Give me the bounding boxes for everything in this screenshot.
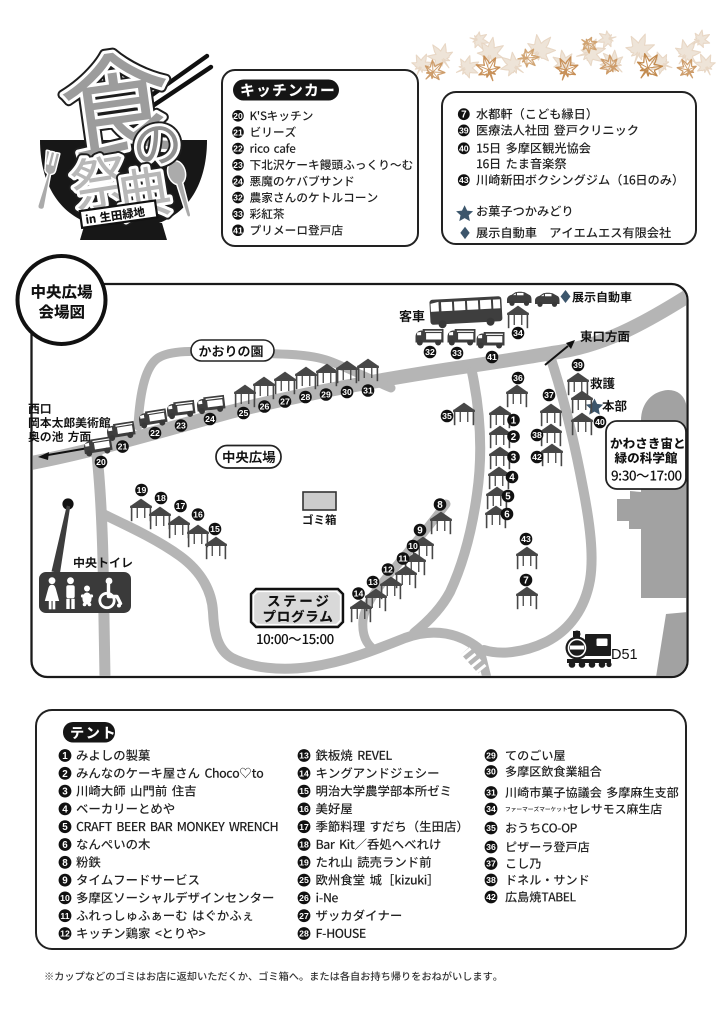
svg-text:32: 32	[425, 347, 435, 357]
svg-text:14: 14	[299, 768, 309, 778]
svg-text:43: 43	[521, 534, 531, 544]
svg-text:7: 7	[461, 110, 467, 121]
svg-text:40: 40	[459, 143, 469, 153]
svg-text:2: 2	[62, 769, 68, 780]
svg-text:18: 18	[299, 840, 309, 850]
svg-text:7: 7	[523, 576, 529, 587]
svg-text:34: 34	[513, 328, 523, 338]
svg-text:18: 18	[156, 493, 166, 503]
svg-text:35: 35	[442, 411, 452, 421]
svg-text:10: 10	[408, 541, 418, 551]
svg-text:13: 13	[299, 751, 309, 761]
svg-text:8: 8	[437, 500, 443, 511]
svg-text:33: 33	[233, 209, 243, 219]
svg-text:11: 11	[60, 911, 69, 921]
svg-text:22: 22	[233, 144, 243, 154]
svg-text:13: 13	[368, 577, 378, 587]
svg-text:21: 21	[233, 127, 243, 137]
svg-text:15: 15	[299, 786, 309, 796]
svg-text:21: 21	[118, 442, 128, 452]
svg-text:9: 9	[62, 876, 68, 887]
svg-text:25: 25	[239, 408, 249, 418]
svg-text:2: 2	[511, 432, 517, 443]
svg-text:31: 31	[486, 788, 496, 798]
svg-text:28: 28	[299, 929, 309, 939]
svg-text:17: 17	[299, 822, 309, 832]
svg-text:42: 42	[486, 892, 496, 902]
svg-text:26: 26	[299, 893, 309, 903]
svg-text:15: 15	[210, 524, 220, 534]
svg-text:38: 38	[486, 875, 496, 885]
svg-text:43: 43	[459, 175, 469, 185]
svg-text:30: 30	[486, 767, 496, 777]
svg-text:9: 9	[417, 526, 423, 537]
svg-text:11: 11	[398, 554, 407, 564]
svg-text:33: 33	[452, 348, 462, 358]
svg-text:37: 37	[544, 390, 554, 400]
svg-text:1: 1	[511, 416, 517, 427]
svg-text:D51: D51	[611, 647, 638, 663]
svg-text:20: 20	[96, 457, 106, 467]
svg-text:22: 22	[150, 428, 160, 438]
svg-text:4: 4	[509, 473, 515, 484]
svg-text:39: 39	[573, 360, 583, 370]
svg-text:3: 3	[62, 787, 68, 798]
svg-text:40: 40	[595, 417, 605, 427]
svg-text:1: 1	[62, 751, 68, 762]
svg-text:10: 10	[60, 893, 70, 903]
svg-text:36: 36	[513, 373, 523, 383]
svg-text:36: 36	[486, 842, 496, 852]
svg-text:17: 17	[176, 501, 186, 511]
svg-text:6: 6	[504, 510, 510, 521]
svg-text:31: 31	[363, 386, 373, 396]
svg-text:24: 24	[233, 176, 243, 186]
svg-text:5: 5	[62, 822, 68, 833]
svg-text:6: 6	[62, 840, 68, 851]
svg-text:27: 27	[299, 911, 309, 921]
svg-text:25: 25	[299, 875, 309, 885]
svg-text:30: 30	[342, 387, 352, 397]
svg-text:4: 4	[62, 804, 68, 815]
svg-text:39: 39	[459, 126, 469, 136]
svg-text:23: 23	[233, 160, 243, 170]
svg-text:5: 5	[505, 492, 511, 503]
svg-text:19: 19	[299, 857, 309, 867]
svg-text:28: 28	[301, 392, 311, 402]
svg-text:8: 8	[62, 858, 68, 869]
svg-text:29: 29	[486, 751, 496, 761]
svg-text:27: 27	[280, 397, 290, 407]
svg-text:42: 42	[532, 452, 542, 462]
svg-text:12: 12	[383, 565, 393, 575]
svg-text:41: 41	[487, 352, 497, 362]
svg-text:3: 3	[511, 453, 517, 464]
svg-text:12: 12	[60, 929, 70, 939]
svg-text:35: 35	[486, 823, 496, 833]
svg-text:20: 20	[233, 111, 243, 121]
svg-text:32: 32	[233, 193, 243, 203]
svg-text:14: 14	[354, 589, 364, 599]
svg-text:24: 24	[205, 414, 215, 424]
svg-text:16: 16	[299, 804, 309, 814]
svg-text:23: 23	[176, 421, 186, 431]
svg-text:37: 37	[486, 859, 496, 869]
svg-text:16: 16	[193, 510, 203, 520]
svg-text:38: 38	[532, 430, 542, 440]
svg-text:26: 26	[260, 402, 270, 412]
svg-text:41: 41	[233, 225, 243, 235]
svg-text:34: 34	[486, 804, 496, 814]
svg-text:19: 19	[137, 485, 147, 495]
svg-text:29: 29	[321, 390, 331, 400]
